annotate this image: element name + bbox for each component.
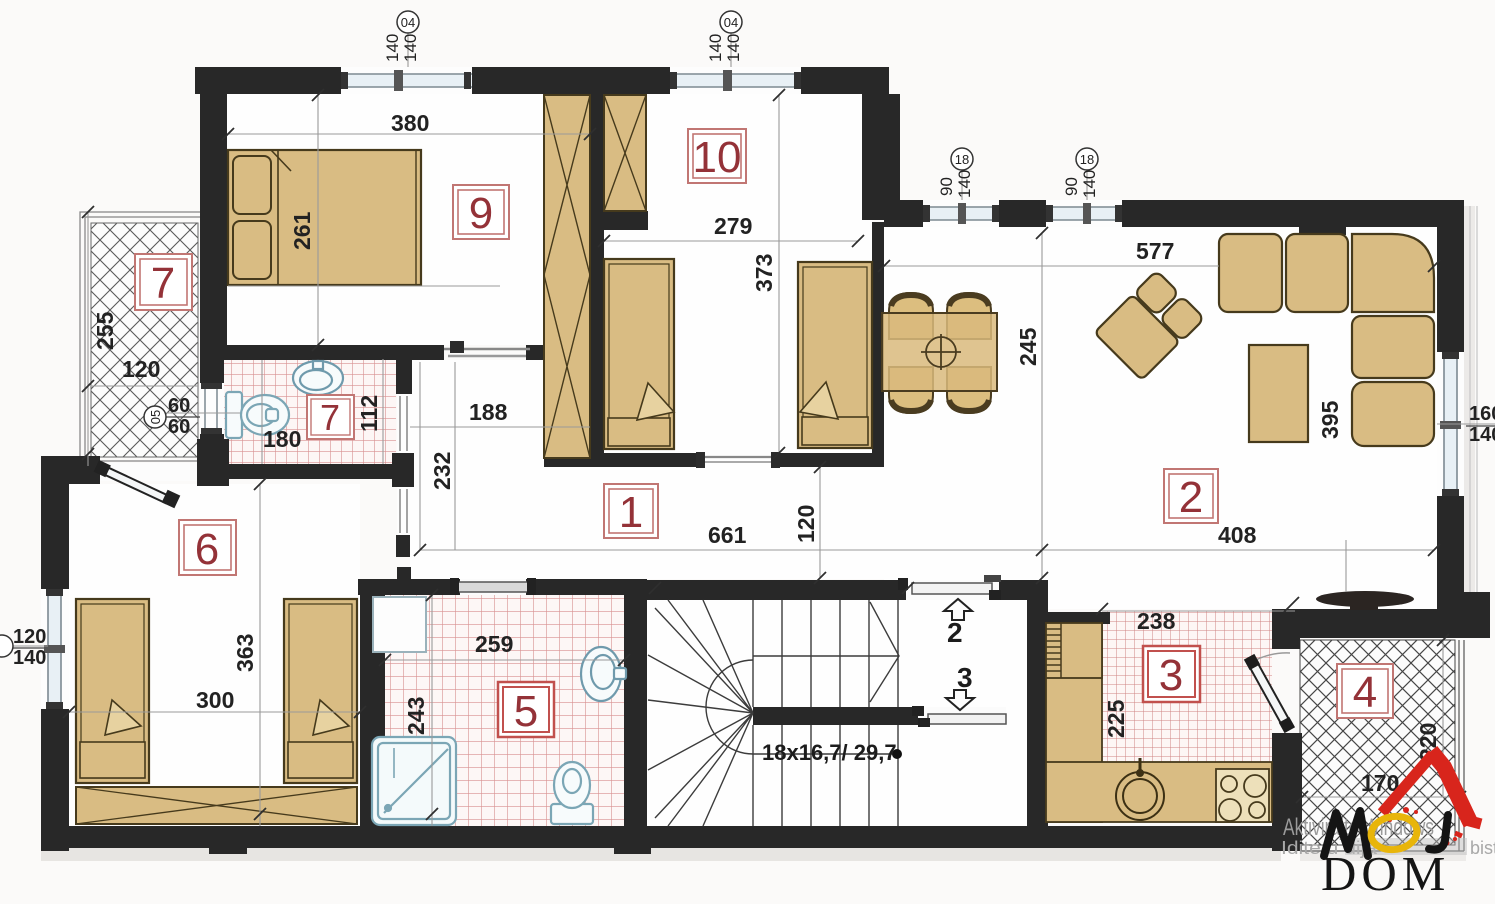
svg-text:188: 188 xyxy=(469,399,508,425)
svg-text:18: 18 xyxy=(955,152,969,167)
svg-text:243: 243 xyxy=(403,697,429,735)
svg-text:245: 245 xyxy=(1015,327,1041,366)
svg-text:DOM: DOM xyxy=(1321,846,1450,901)
svg-text:3: 3 xyxy=(957,662,973,693)
svg-text:04: 04 xyxy=(401,15,415,30)
svg-text:04: 04 xyxy=(724,15,738,30)
svg-text:18x16,7/ 29,7: 18x16,7/ 29,7 xyxy=(762,740,897,765)
svg-text:140: 140 xyxy=(401,34,420,62)
svg-text:140: 140 xyxy=(724,34,743,62)
svg-text:373: 373 xyxy=(751,254,777,292)
svg-text:577: 577 xyxy=(1136,238,1174,264)
svg-text:300: 300 xyxy=(196,687,234,713)
svg-text:259: 259 xyxy=(475,631,513,657)
svg-text:140: 140 xyxy=(1080,170,1099,198)
svg-text:279: 279 xyxy=(714,213,752,239)
svg-text:bist: bist xyxy=(1470,838,1495,858)
svg-text:90: 90 xyxy=(937,177,956,196)
svg-text:7: 7 xyxy=(320,397,340,438)
svg-text:2: 2 xyxy=(947,617,963,648)
svg-text:238: 238 xyxy=(1137,608,1176,634)
svg-text:140: 140 xyxy=(13,647,46,669)
svg-text:18: 18 xyxy=(1080,152,1094,167)
svg-text:120: 120 xyxy=(122,356,160,382)
svg-text:255: 255 xyxy=(92,311,118,350)
svg-text:3: 3 xyxy=(1159,651,1183,700)
svg-text:9: 9 xyxy=(469,189,493,238)
svg-text:408: 408 xyxy=(1218,522,1257,548)
svg-text:225: 225 xyxy=(1103,699,1129,738)
svg-text:140: 140 xyxy=(383,34,402,62)
svg-text:380: 380 xyxy=(391,110,429,136)
svg-text:395: 395 xyxy=(1317,400,1343,439)
svg-text:4: 4 xyxy=(1353,668,1377,717)
svg-text:7: 7 xyxy=(151,259,175,308)
svg-text:180: 180 xyxy=(263,426,301,452)
svg-text:120: 120 xyxy=(793,505,819,543)
svg-text:112: 112 xyxy=(356,395,382,432)
svg-text:261: 261 xyxy=(289,211,315,250)
svg-text:140: 140 xyxy=(706,34,725,62)
svg-text:120: 120 xyxy=(13,626,46,648)
svg-text:60: 60 xyxy=(168,416,190,438)
svg-text:60: 60 xyxy=(168,395,190,417)
svg-text:2: 2 xyxy=(1179,473,1203,522)
svg-text:1: 1 xyxy=(619,488,643,537)
svg-text:90: 90 xyxy=(1062,177,1081,196)
svg-text:363: 363 xyxy=(232,634,258,672)
svg-text:661: 661 xyxy=(708,522,747,548)
svg-text:140: 140 xyxy=(1469,424,1495,446)
svg-text:10: 10 xyxy=(693,133,742,182)
svg-text:140: 140 xyxy=(955,170,974,198)
svg-text:232: 232 xyxy=(429,452,455,490)
svg-text:6: 6 xyxy=(195,525,219,574)
svg-text:160: 160 xyxy=(1469,403,1495,425)
svg-text:5: 5 xyxy=(514,687,538,736)
svg-text:05: 05 xyxy=(148,410,163,424)
